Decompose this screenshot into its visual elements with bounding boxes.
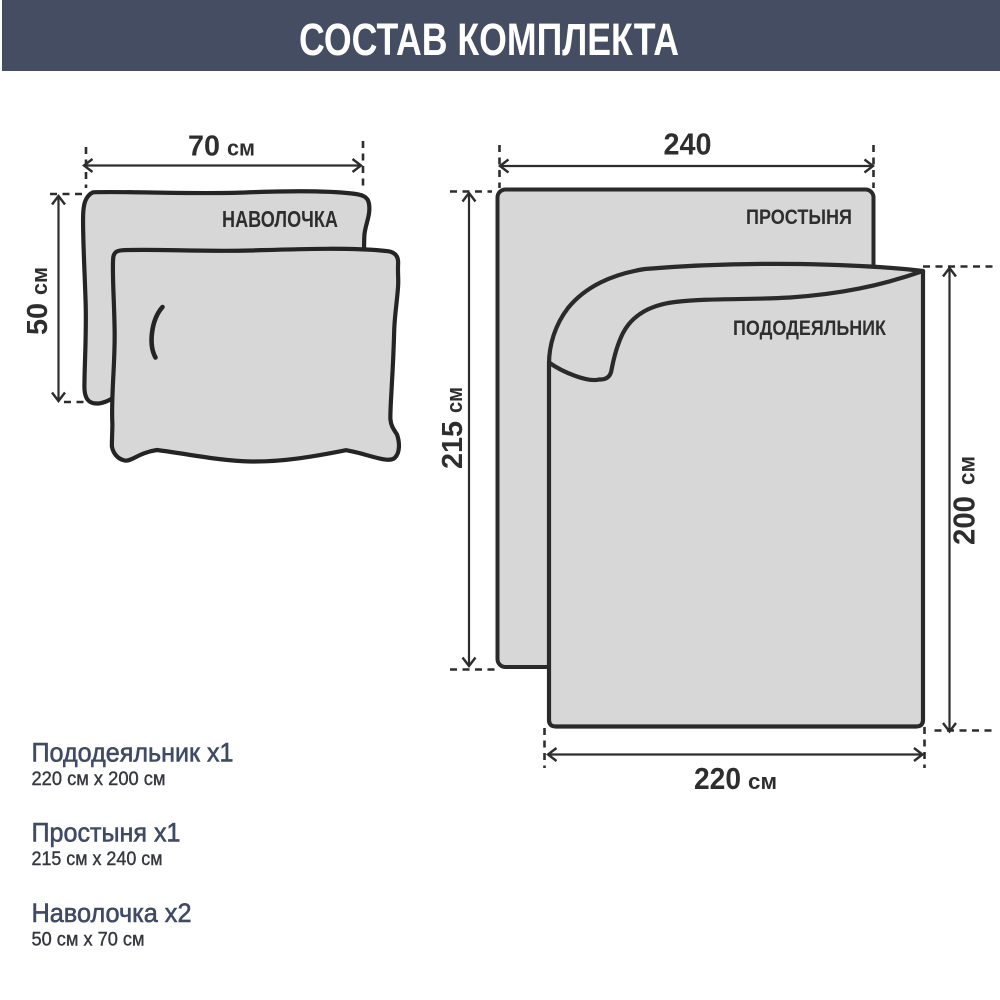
svg-text:см: см (227, 136, 255, 161)
svg-text:220: 220 (694, 761, 741, 796)
svg-text:СОСТАВ КОМПЛЕКТА: СОСТАВ КОМПЛЕКТА (299, 14, 679, 65)
svg-text:240: 240 (664, 127, 712, 162)
svg-text:НАВОЛОЧКА: НАВОЛОЧКА (222, 206, 338, 232)
svg-text:Пододеяльник x1: Пододеяльник x1 (32, 738, 234, 768)
svg-text:70: 70 (188, 131, 220, 163)
svg-text:ПРОСТЫНЯ: ПРОСТЫНЯ (746, 206, 852, 229)
svg-text:см: см (442, 387, 467, 413)
svg-text:см: см (27, 267, 52, 295)
svg-text:Простыня x1: Простыня x1 (32, 818, 181, 848)
svg-text:200: 200 (947, 496, 982, 545)
svg-text:Наволочка x2: Наволочка x2 (32, 898, 192, 928)
svg-text:50 см x 70 см: 50 см x 70 см (32, 930, 145, 951)
svg-text:см: см (748, 769, 777, 794)
svg-text:см: см (954, 456, 980, 485)
svg-text:220 см x 200 см: 220 см x 200 см (32, 769, 166, 790)
svg-text:215 см x 240 см: 215 см x 240 см (32, 849, 163, 870)
svg-text:215: 215 (437, 421, 469, 469)
svg-text:50: 50 (22, 303, 54, 335)
svg-text:ПОДОДЕЯЛЬНИК: ПОДОДЕЯЛЬНИК (733, 317, 886, 340)
